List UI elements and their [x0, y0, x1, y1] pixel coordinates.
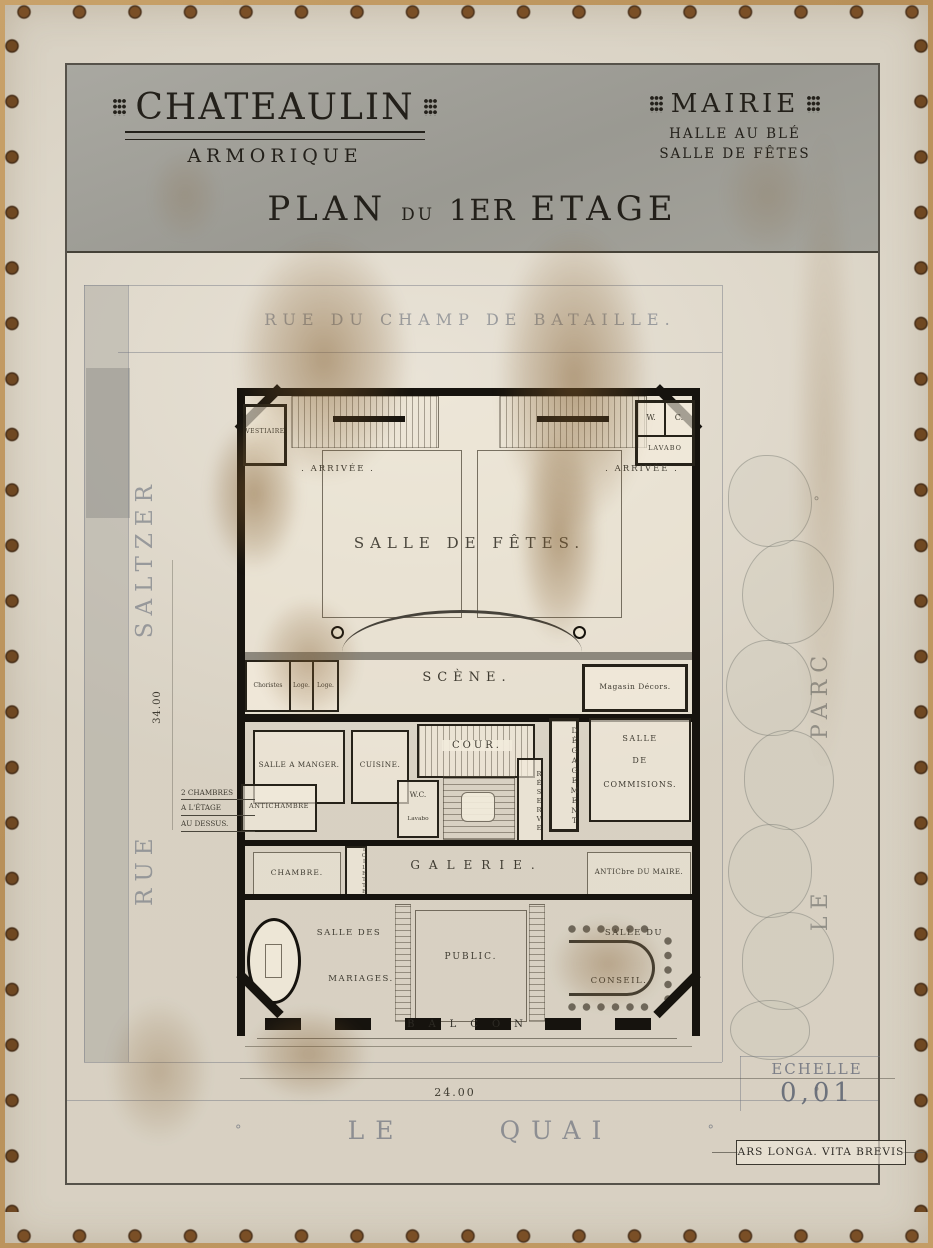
floor-plan: VESTIAIRE W. C. LAVABO . ARRIVÉE . . ARR… — [237, 388, 700, 1050]
plan-title-word: PLAN — [267, 189, 387, 229]
title-underline — [125, 131, 424, 140]
street-top-label: RUE DU CHAMP DE BATAILLE. — [250, 310, 690, 329]
railing-hatch — [529, 904, 545, 1022]
building-title: MAIRIE — [671, 89, 800, 119]
plan-title-word: ETAGE — [531, 189, 678, 229]
ornament-squares-icon — [650, 96, 663, 113]
room-label-loge2: Loge. — [314, 662, 337, 710]
column-icon — [331, 626, 344, 639]
room-label-cour: COUR. — [442, 740, 512, 751]
room-wc-mid — [397, 780, 439, 838]
room-vestiaire — [243, 404, 287, 466]
room-label-commissions-3: COMMISIONS. — [589, 780, 691, 789]
room-label-conseil-2: CONSEIL. — [569, 976, 669, 986]
survey-line — [84, 285, 722, 286]
room-label-magasin-decors: Magasin Décors. — [582, 682, 688, 691]
note-line: AU DESSUS. — [181, 816, 255, 832]
room-label-wc-c: C. — [666, 403, 692, 435]
street-left-word: RUE — [132, 832, 158, 907]
survey-line — [128, 285, 129, 1062]
mounted-drawing-board: { "header": { "city": "CHATEAULIN", "reg… — [0, 0, 933, 1248]
ornament-dot-icon: ° — [707, 1123, 725, 1138]
motto-line — [903, 1152, 923, 1153]
ornament-squares-icon — [113, 99, 126, 116]
street-right-label: ° LE PARC ° — [808, 488, 833, 1092]
ornament-dot-icon: ° — [235, 1123, 253, 1138]
room-label-vestiaire: VESTIAIRE — [243, 428, 287, 435]
room-label-reserve: RÉSERVE — [517, 760, 543, 842]
room-public — [415, 910, 527, 1022]
room-label-public: PUBLIC. — [415, 952, 527, 962]
room-label-degagement: DÉGAGEMENT — [549, 722, 579, 830]
room-label-wc-w: W. — [638, 403, 666, 435]
street-left-word: SALTZER — [132, 478, 158, 638]
room-label-lavabo-mid: Lavabo — [397, 816, 439, 822]
survey-line — [722, 285, 723, 1062]
stair-flight — [499, 396, 647, 448]
council-table — [569, 940, 655, 996]
stair-flight — [291, 396, 439, 448]
dimension-line-vertical — [172, 560, 173, 830]
street-right-word: LE — [808, 886, 833, 931]
scale-block: ECHELLE 0,01 — [742, 1060, 892, 1108]
room-label-commissions-2: DE — [589, 756, 691, 765]
survey-line — [118, 352, 722, 353]
ornament-squares-icon — [807, 96, 820, 113]
plan-title-word: DU — [401, 205, 435, 225]
room-label-cuisine: CUISINE. — [351, 760, 409, 769]
backstage-rooms: Choristes Loge. Loge. — [245, 660, 339, 712]
quai-label: ° LE QUAI ° — [235, 1116, 725, 1145]
room-label-mariages-1: SALLE DES — [289, 928, 409, 938]
survey-line — [84, 285, 85, 1062]
galerie-wall-bottom — [237, 894, 700, 900]
quai-word: LE — [348, 1116, 405, 1145]
room-label-scene: SCÈNE. — [382, 670, 552, 685]
room-label-loge1: Loge. — [291, 662, 314, 710]
motto-line — [712, 1152, 738, 1153]
building-subtitle-1: HALLE AU BLÉ — [620, 126, 850, 142]
room-label-chambre: CHAMBRE. — [253, 868, 341, 877]
stair-newel — [461, 792, 495, 822]
room-label-commissions-1: SALLE — [589, 734, 691, 743]
note-annotation: 2 CHAMBRES A L'ÉTAGE AU DESSUS. — [181, 786, 255, 832]
stair-handrail — [537, 416, 609, 422]
room-label-lavabo-top: LAVABO — [638, 437, 692, 459]
motto-cartouche: ARS LONGA. VITA BREVIS — [736, 1140, 906, 1165]
council-chairs-icon — [663, 936, 673, 1000]
room-label-antichambre-maire: ANTICbre DU MAIRE. — [587, 868, 691, 876]
street-right-word: PARC — [808, 649, 833, 739]
column-icon — [573, 626, 586, 639]
dimension-width: 24.00 — [400, 1086, 510, 1099]
scale-value: 0,01 — [742, 1078, 892, 1108]
room-label-wc-mid: W.C. — [397, 790, 439, 799]
left-street-wash-dark — [86, 368, 130, 518]
balcony-line — [245, 1046, 692, 1047]
city-title: CHATEAULIN — [135, 87, 414, 128]
balcony-line — [257, 1038, 677, 1039]
scale-label: ECHELLE — [742, 1060, 892, 1078]
plan-title: PLAN DU 1ER ETAGE — [67, 189, 878, 229]
room-label-balcon: BALCON — [337, 1019, 607, 1030]
room-label-salle-de-fetes: SALLE DE FÊTES. — [297, 534, 642, 552]
region-subtitle: ARMORIQUE — [105, 145, 445, 167]
note-line: A L'ÉTAGE — [181, 800, 255, 816]
side-wall-right — [692, 718, 700, 1036]
room-wc-top: W. C. LAVABO — [635, 400, 695, 466]
survey-line — [740, 1056, 741, 1111]
council-chairs-icon — [567, 924, 655, 934]
galerie-wall-top — [237, 840, 700, 846]
railing-hatch — [395, 904, 411, 1022]
room-label-salle-a-manger: SALLE A MANGER. — [253, 760, 345, 769]
quai-word: QUAI — [500, 1116, 613, 1145]
building-subtitle-2: SALLE DE FÊTES — [620, 146, 850, 162]
ornament-squares-icon — [424, 99, 437, 116]
council-chairs-icon — [567, 1002, 655, 1012]
stair-handrail — [333, 416, 405, 422]
building-title-block: MAIRIE HALLE AU BLÉ SALLE DE FÊTES — [620, 89, 850, 162]
survey-line — [84, 1062, 722, 1063]
dimension-height: 34.00 — [152, 672, 163, 742]
note-line: 2 CHAMBRES — [181, 786, 255, 800]
apse-furniture — [265, 944, 282, 978]
side-wall-left — [237, 718, 245, 1036]
ornament-dot-icon: ° — [813, 488, 828, 502]
room-label-toilette: TOILETTE. — [345, 847, 367, 899]
city-title-block: CHATEAULIN ARMORIQUE — [105, 87, 445, 167]
plan-title-word: 1ER — [449, 193, 516, 227]
room-label-galerie: GALERIE. — [377, 858, 577, 872]
title-block: CHATEAULIN ARMORIQUE MAIRIE HALLE AU BLÉ… — [67, 65, 878, 253]
room-label-choristes: Choristes — [247, 662, 291, 710]
